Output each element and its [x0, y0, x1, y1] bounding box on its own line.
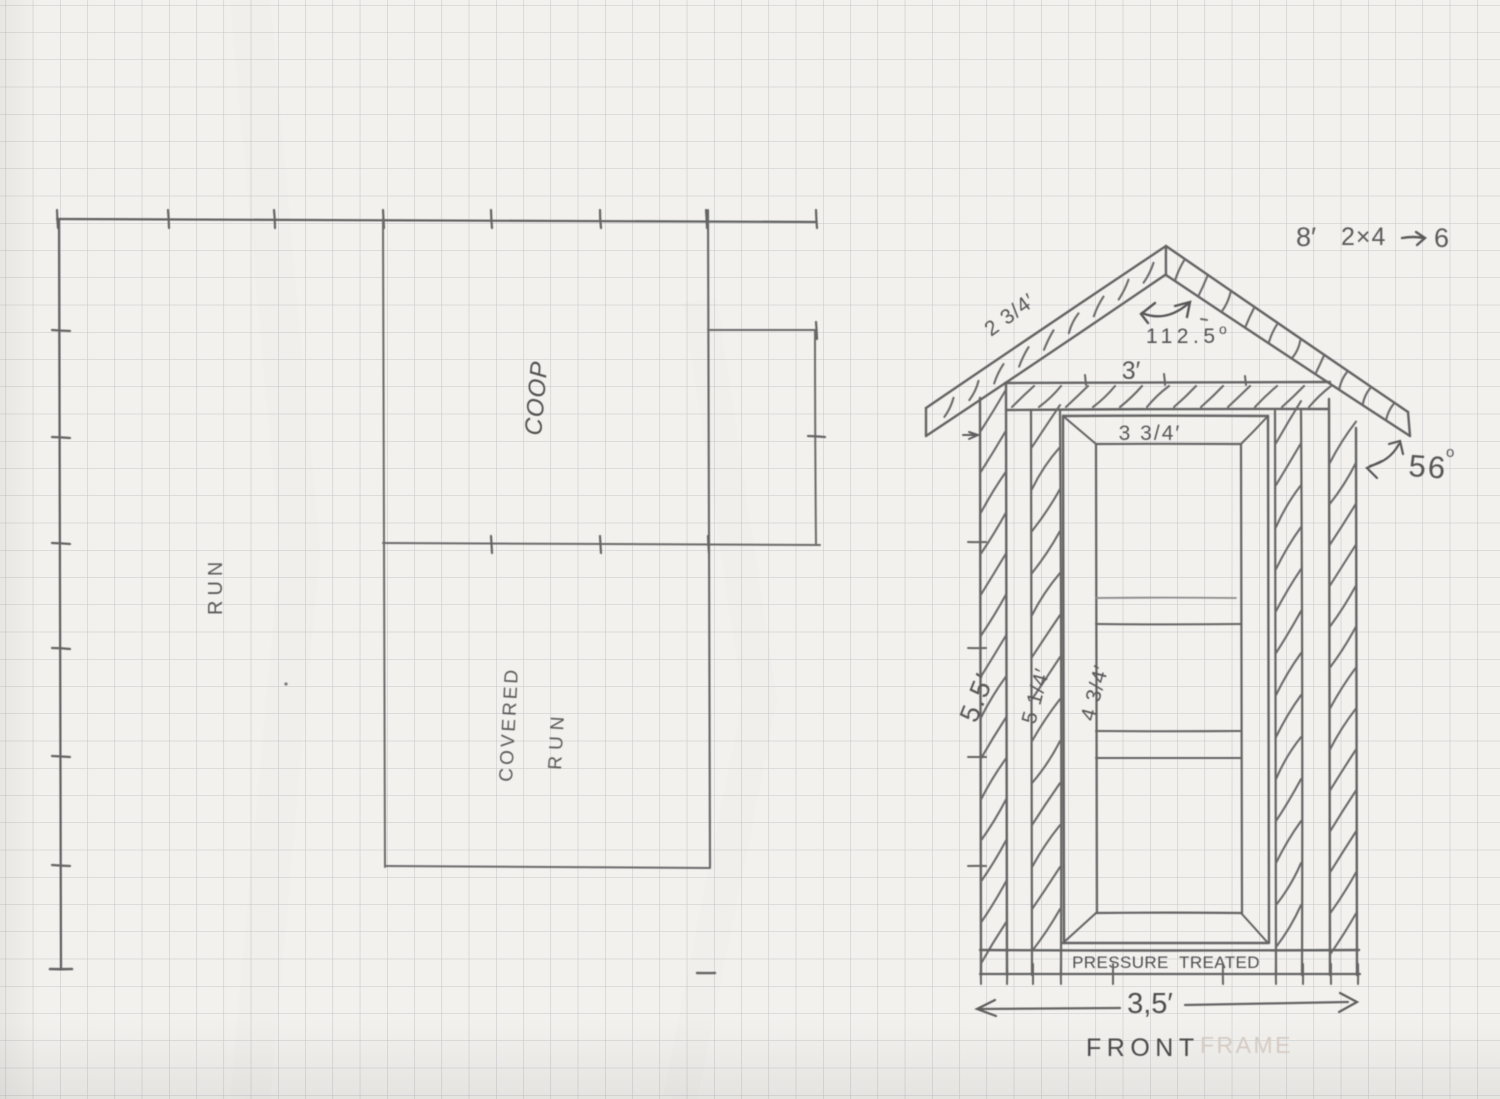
svg-text:PRESSURE TREATED: PRESSURE TREATED	[1072, 953, 1260, 972]
svg-text:o: o	[1446, 444, 1454, 461]
svg-text:RUN: RUN	[205, 557, 227, 615]
svg-text:8′: 8′	[1296, 222, 1316, 252]
svg-text:56: 56	[1408, 448, 1449, 486]
svg-text:6: 6	[1434, 223, 1449, 253]
svg-text:FRONT: FRONT	[1086, 1034, 1200, 1062]
svg-text:3′: 3′	[1122, 357, 1141, 385]
svg-text:3,5′: 3,5′	[1127, 988, 1173, 1020]
svg-text:RUN: RUN	[545, 710, 569, 770]
svg-text:2×4: 2×4	[1341, 223, 1386, 251]
svg-text:o: o	[1219, 321, 1227, 337]
svg-text:112.5: 112.5	[1146, 325, 1220, 348]
svg-text:FRAME: FRAME	[1200, 1032, 1293, 1058]
svg-text:3 3/4′: 3 3/4′	[1119, 422, 1182, 445]
